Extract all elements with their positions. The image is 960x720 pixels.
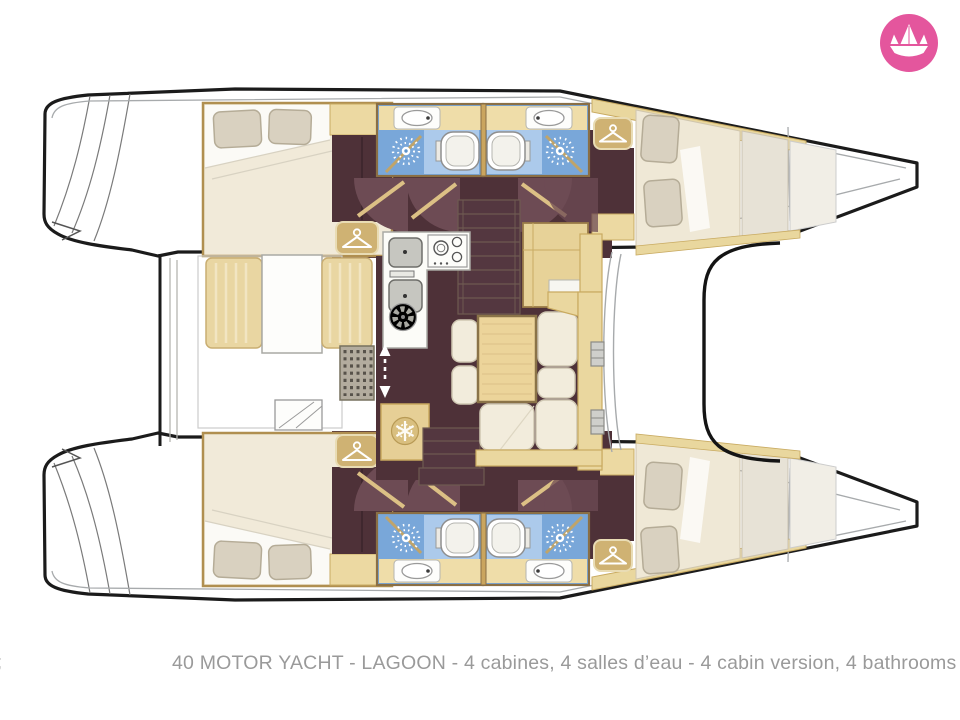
windscreen-lines	[604, 252, 621, 452]
stool	[452, 320, 478, 362]
stairs-aft	[419, 428, 484, 485]
floorplan-caption: 40 MOTOR YACHT - LAGOON - 4 cabines, 4 s…	[172, 652, 956, 675]
floorplan-drawing	[0, 0, 960, 720]
fan-icon	[390, 304, 417, 331]
deck-hatch	[275, 400, 322, 430]
salon-table	[478, 316, 536, 402]
brand-logo	[879, 13, 939, 73]
drawer-handle	[390, 271, 414, 277]
yacht-floorplan-page: ; 40 MOTOR YACHT - LAGOON - 4 cabines, 4…	[0, 0, 960, 720]
stove-burners	[428, 235, 467, 267]
coachroof-outline	[704, 243, 780, 461]
stool	[452, 366, 478, 404]
deck-grate	[340, 346, 374, 400]
paper-boat-icon	[879, 13, 939, 73]
snowflake-icon	[392, 418, 419, 445]
caption-left-fragment: ;	[0, 652, 2, 673]
foredeck	[591, 243, 780, 461]
cockpit-table	[262, 255, 322, 353]
cockpit	[198, 255, 391, 430]
fridge	[381, 404, 429, 460]
aft-transom	[160, 254, 177, 446]
cockpit-bench	[206, 255, 372, 353]
